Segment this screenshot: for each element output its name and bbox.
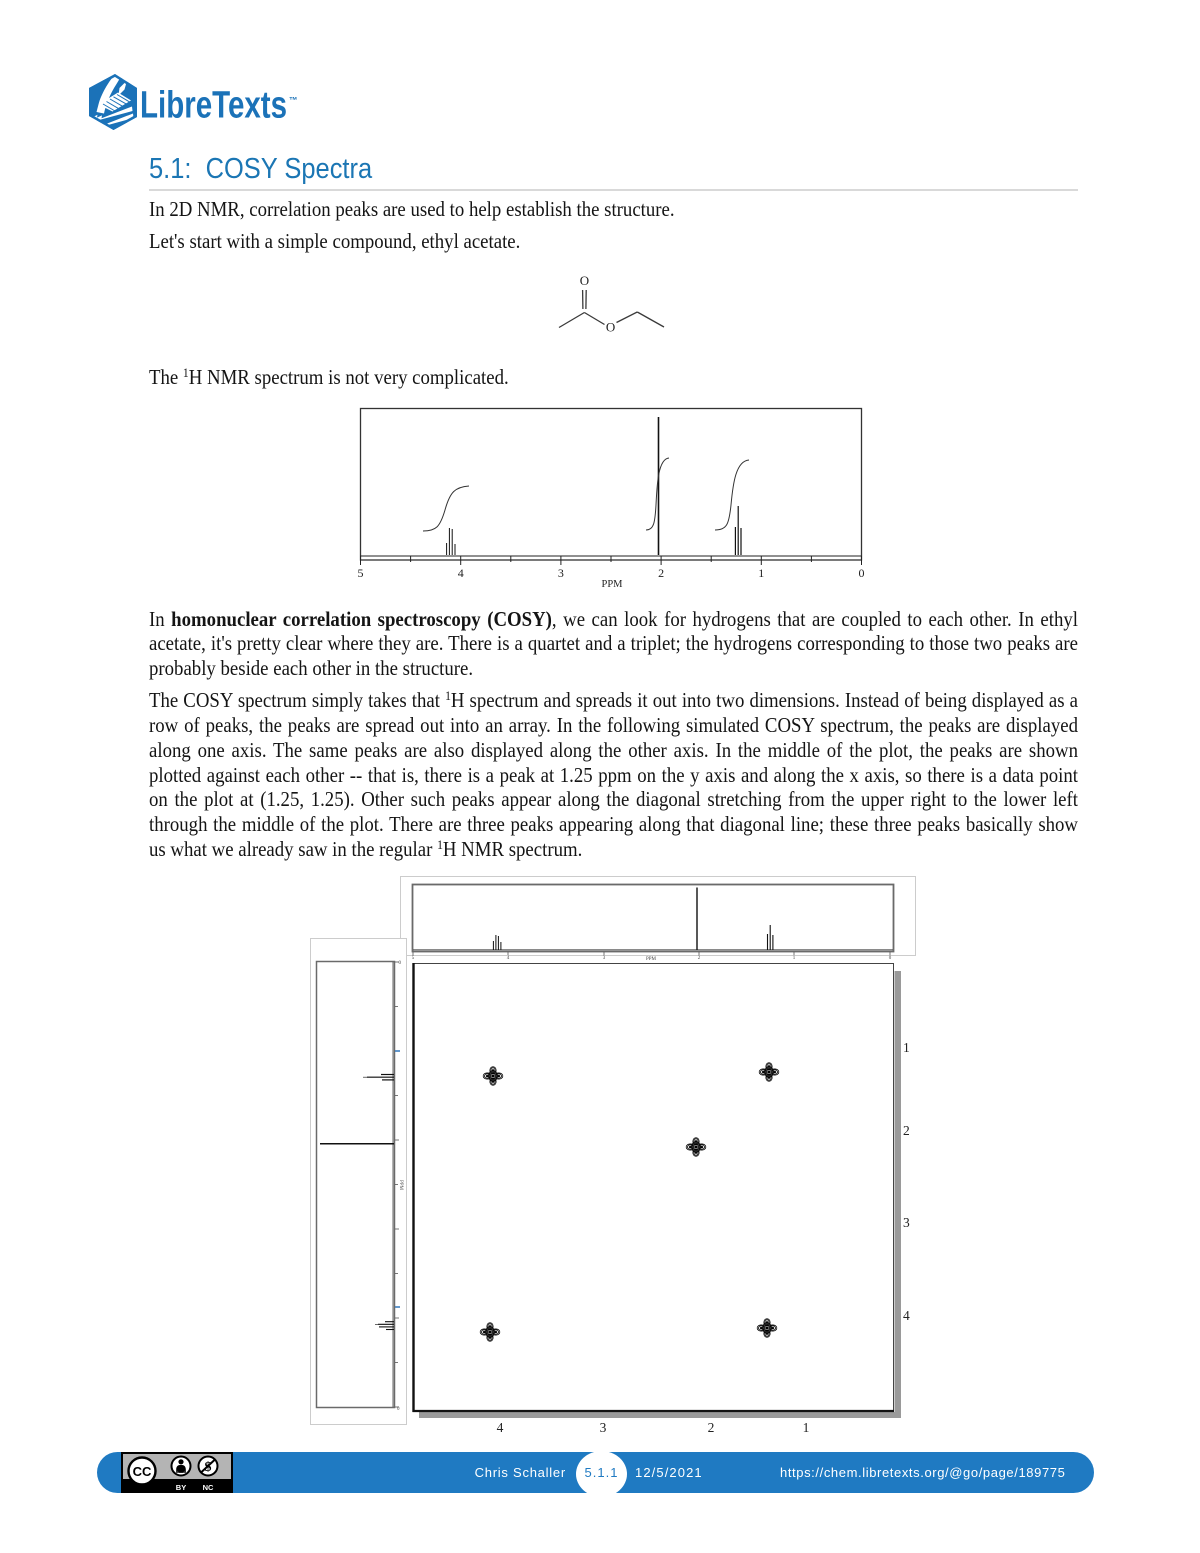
svg-text:4: 4	[497, 1420, 504, 1435]
svg-text:BY: BY	[176, 1483, 186, 1492]
svg-text:3: 3	[603, 956, 606, 961]
svg-text:O: O	[580, 273, 589, 288]
svg-text:5: 5	[358, 566, 364, 580]
svg-text:PPM: PPM	[398, 1180, 403, 1191]
svg-text:1: 1	[793, 956, 796, 961]
svg-text:4: 4	[458, 566, 464, 580]
svg-text:3: 3	[600, 1420, 607, 1435]
svg-text:PPM: PPM	[646, 957, 657, 962]
svg-text:4: 4	[507, 956, 510, 961]
svg-text:O: O	[606, 320, 615, 335]
svg-text:1: 1	[758, 566, 764, 580]
svg-text:5: 5	[412, 956, 415, 961]
svg-text:2: 2	[708, 1420, 715, 1435]
svg-text:4: 4	[903, 1308, 910, 1323]
svg-text:CC: CC	[133, 1464, 152, 1479]
svg-text:3: 3	[903, 1215, 910, 1230]
svg-text:PPM: PPM	[601, 579, 623, 590]
svg-text:0: 0	[859, 566, 865, 580]
svg-text:1: 1	[803, 1420, 810, 1435]
svg-text:™: ™	[289, 95, 298, 105]
svg-text:NC: NC	[203, 1483, 214, 1492]
svg-text:1: 1	[903, 1040, 910, 1055]
svg-text:3: 3	[558, 566, 564, 580]
svg-text:2: 2	[698, 956, 701, 961]
svg-text:LibreTexts: LibreTexts	[140, 85, 287, 127]
svg-text:2: 2	[903, 1123, 910, 1138]
svg-text:2: 2	[658, 566, 664, 580]
svg-text:0: 0	[889, 956, 892, 961]
